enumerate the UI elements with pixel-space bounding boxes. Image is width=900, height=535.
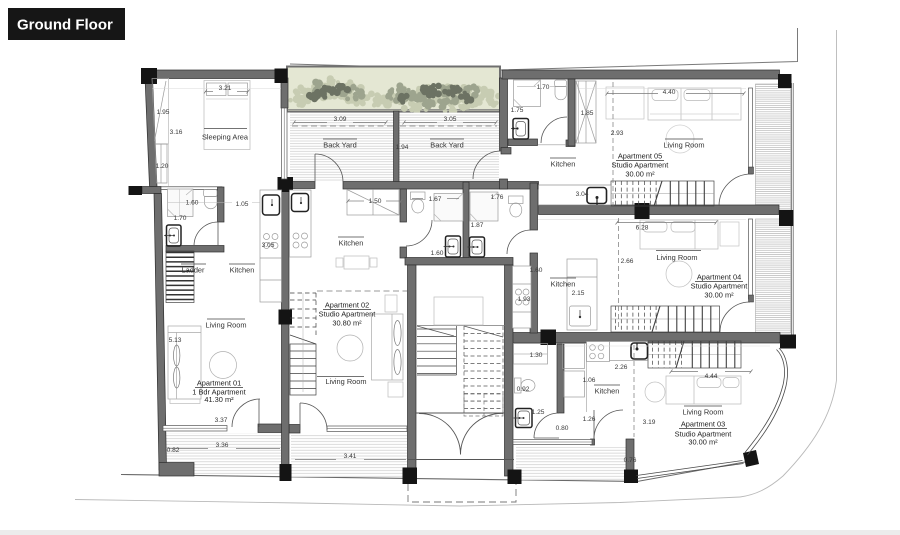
svg-text:Living Room: Living Room	[656, 253, 697, 262]
svg-text:3.21: 3.21	[219, 85, 232, 92]
svg-text:3.05: 3.05	[262, 242, 275, 249]
svg-text:3.16: 3.16	[170, 129, 183, 136]
svg-text:Ladder: Ladder	[181, 266, 205, 275]
svg-text:3.37: 3.37	[215, 417, 228, 424]
svg-text:Sleeping Area: Sleeping Area	[202, 133, 249, 142]
svg-text:3.05: 3.05	[444, 116, 457, 123]
svg-text:1.20: 1.20	[156, 163, 169, 170]
svg-text:Apartment 03: Apartment 03	[681, 420, 725, 429]
svg-text:Back Yard: Back Yard	[323, 141, 356, 150]
svg-text:30.00 m²: 30.00 m²	[688, 438, 718, 447]
svg-text:Kitchen: Kitchen	[595, 387, 620, 396]
svg-text:Apartment 02: Apartment 02	[325, 301, 369, 310]
svg-text:Back Yard: Back Yard	[430, 141, 463, 150]
svg-text:Living Room: Living Room	[325, 377, 366, 386]
svg-text:1.76: 1.76	[491, 194, 504, 201]
svg-text:1.06: 1.06	[583, 377, 596, 384]
svg-text:Kitchen: Kitchen	[551, 160, 576, 169]
svg-text:Apartment 04: Apartment 04	[697, 273, 741, 282]
svg-text:Kitchen: Kitchen	[230, 266, 255, 275]
svg-text:1.85: 1.85	[581, 110, 594, 117]
svg-text:3.41: 3.41	[344, 453, 357, 460]
svg-text:3.04: 3.04	[576, 191, 589, 198]
svg-text:1.60: 1.60	[530, 267, 543, 274]
svg-text:Apartment 05: Apartment 05	[618, 152, 662, 161]
svg-text:1.70: 1.70	[174, 215, 187, 222]
svg-text:30.80 m²: 30.80 m²	[332, 319, 362, 328]
svg-text:1.25: 1.25	[532, 409, 545, 416]
svg-text:1.93: 1.93	[518, 296, 531, 303]
svg-text:1.05: 1.05	[236, 201, 249, 208]
svg-text:1.50: 1.50	[369, 198, 382, 205]
svg-text:1.60: 1.60	[186, 200, 199, 207]
svg-text:0.80: 0.80	[556, 425, 569, 432]
svg-text:6.28: 6.28	[636, 225, 649, 232]
svg-text:2.26: 2.26	[615, 364, 628, 371]
svg-text:0.82: 0.82	[167, 447, 180, 454]
svg-text:Kitchen: Kitchen	[339, 239, 364, 248]
svg-text:4.44: 4.44	[705, 373, 718, 380]
svg-text:5.13: 5.13	[169, 337, 182, 344]
svg-text:3.36: 3.36	[216, 442, 229, 449]
svg-text:1.94: 1.94	[396, 144, 409, 151]
svg-text:Ground Floor: Ground Floor	[17, 17, 113, 34]
svg-text:Apartment 01: Apartment 01	[197, 379, 241, 388]
svg-text:4.40: 4.40	[663, 89, 676, 96]
svg-text:Studio Apartment: Studio Apartment	[691, 282, 748, 291]
svg-text:1.30: 1.30	[530, 352, 543, 359]
svg-text:Living Room: Living Room	[682, 408, 723, 417]
svg-text:30.00 m²: 30.00 m²	[625, 170, 655, 179]
svg-text:1.67: 1.67	[429, 196, 442, 203]
svg-text:1.70: 1.70	[537, 84, 550, 91]
svg-text:2.93: 2.93	[611, 130, 624, 137]
svg-text:3.19: 3.19	[643, 419, 656, 426]
svg-text:1.87: 1.87	[471, 222, 484, 229]
svg-text:1.26: 1.26	[583, 416, 596, 423]
svg-text:0.76: 0.76	[624, 457, 637, 464]
svg-text:30.00 m²: 30.00 m²	[704, 291, 734, 300]
svg-text:41.30 m²: 41.30 m²	[204, 395, 234, 404]
svg-text:0.92: 0.92	[517, 386, 530, 393]
svg-text:Kitchen: Kitchen	[551, 280, 576, 289]
svg-text:1.60: 1.60	[431, 250, 444, 257]
svg-text:Living Room: Living Room	[663, 141, 704, 150]
svg-text:Studio Apartment: Studio Apartment	[319, 310, 376, 319]
svg-text:Studio Apartment: Studio Apartment	[612, 161, 669, 170]
svg-text:3.09: 3.09	[334, 116, 347, 123]
svg-text:1.95: 1.95	[157, 109, 170, 116]
svg-text:1.75: 1.75	[511, 107, 524, 114]
svg-text:Living Room: Living Room	[205, 321, 246, 330]
svg-text:2.66: 2.66	[621, 258, 634, 265]
svg-text:2.15: 2.15	[572, 290, 585, 297]
